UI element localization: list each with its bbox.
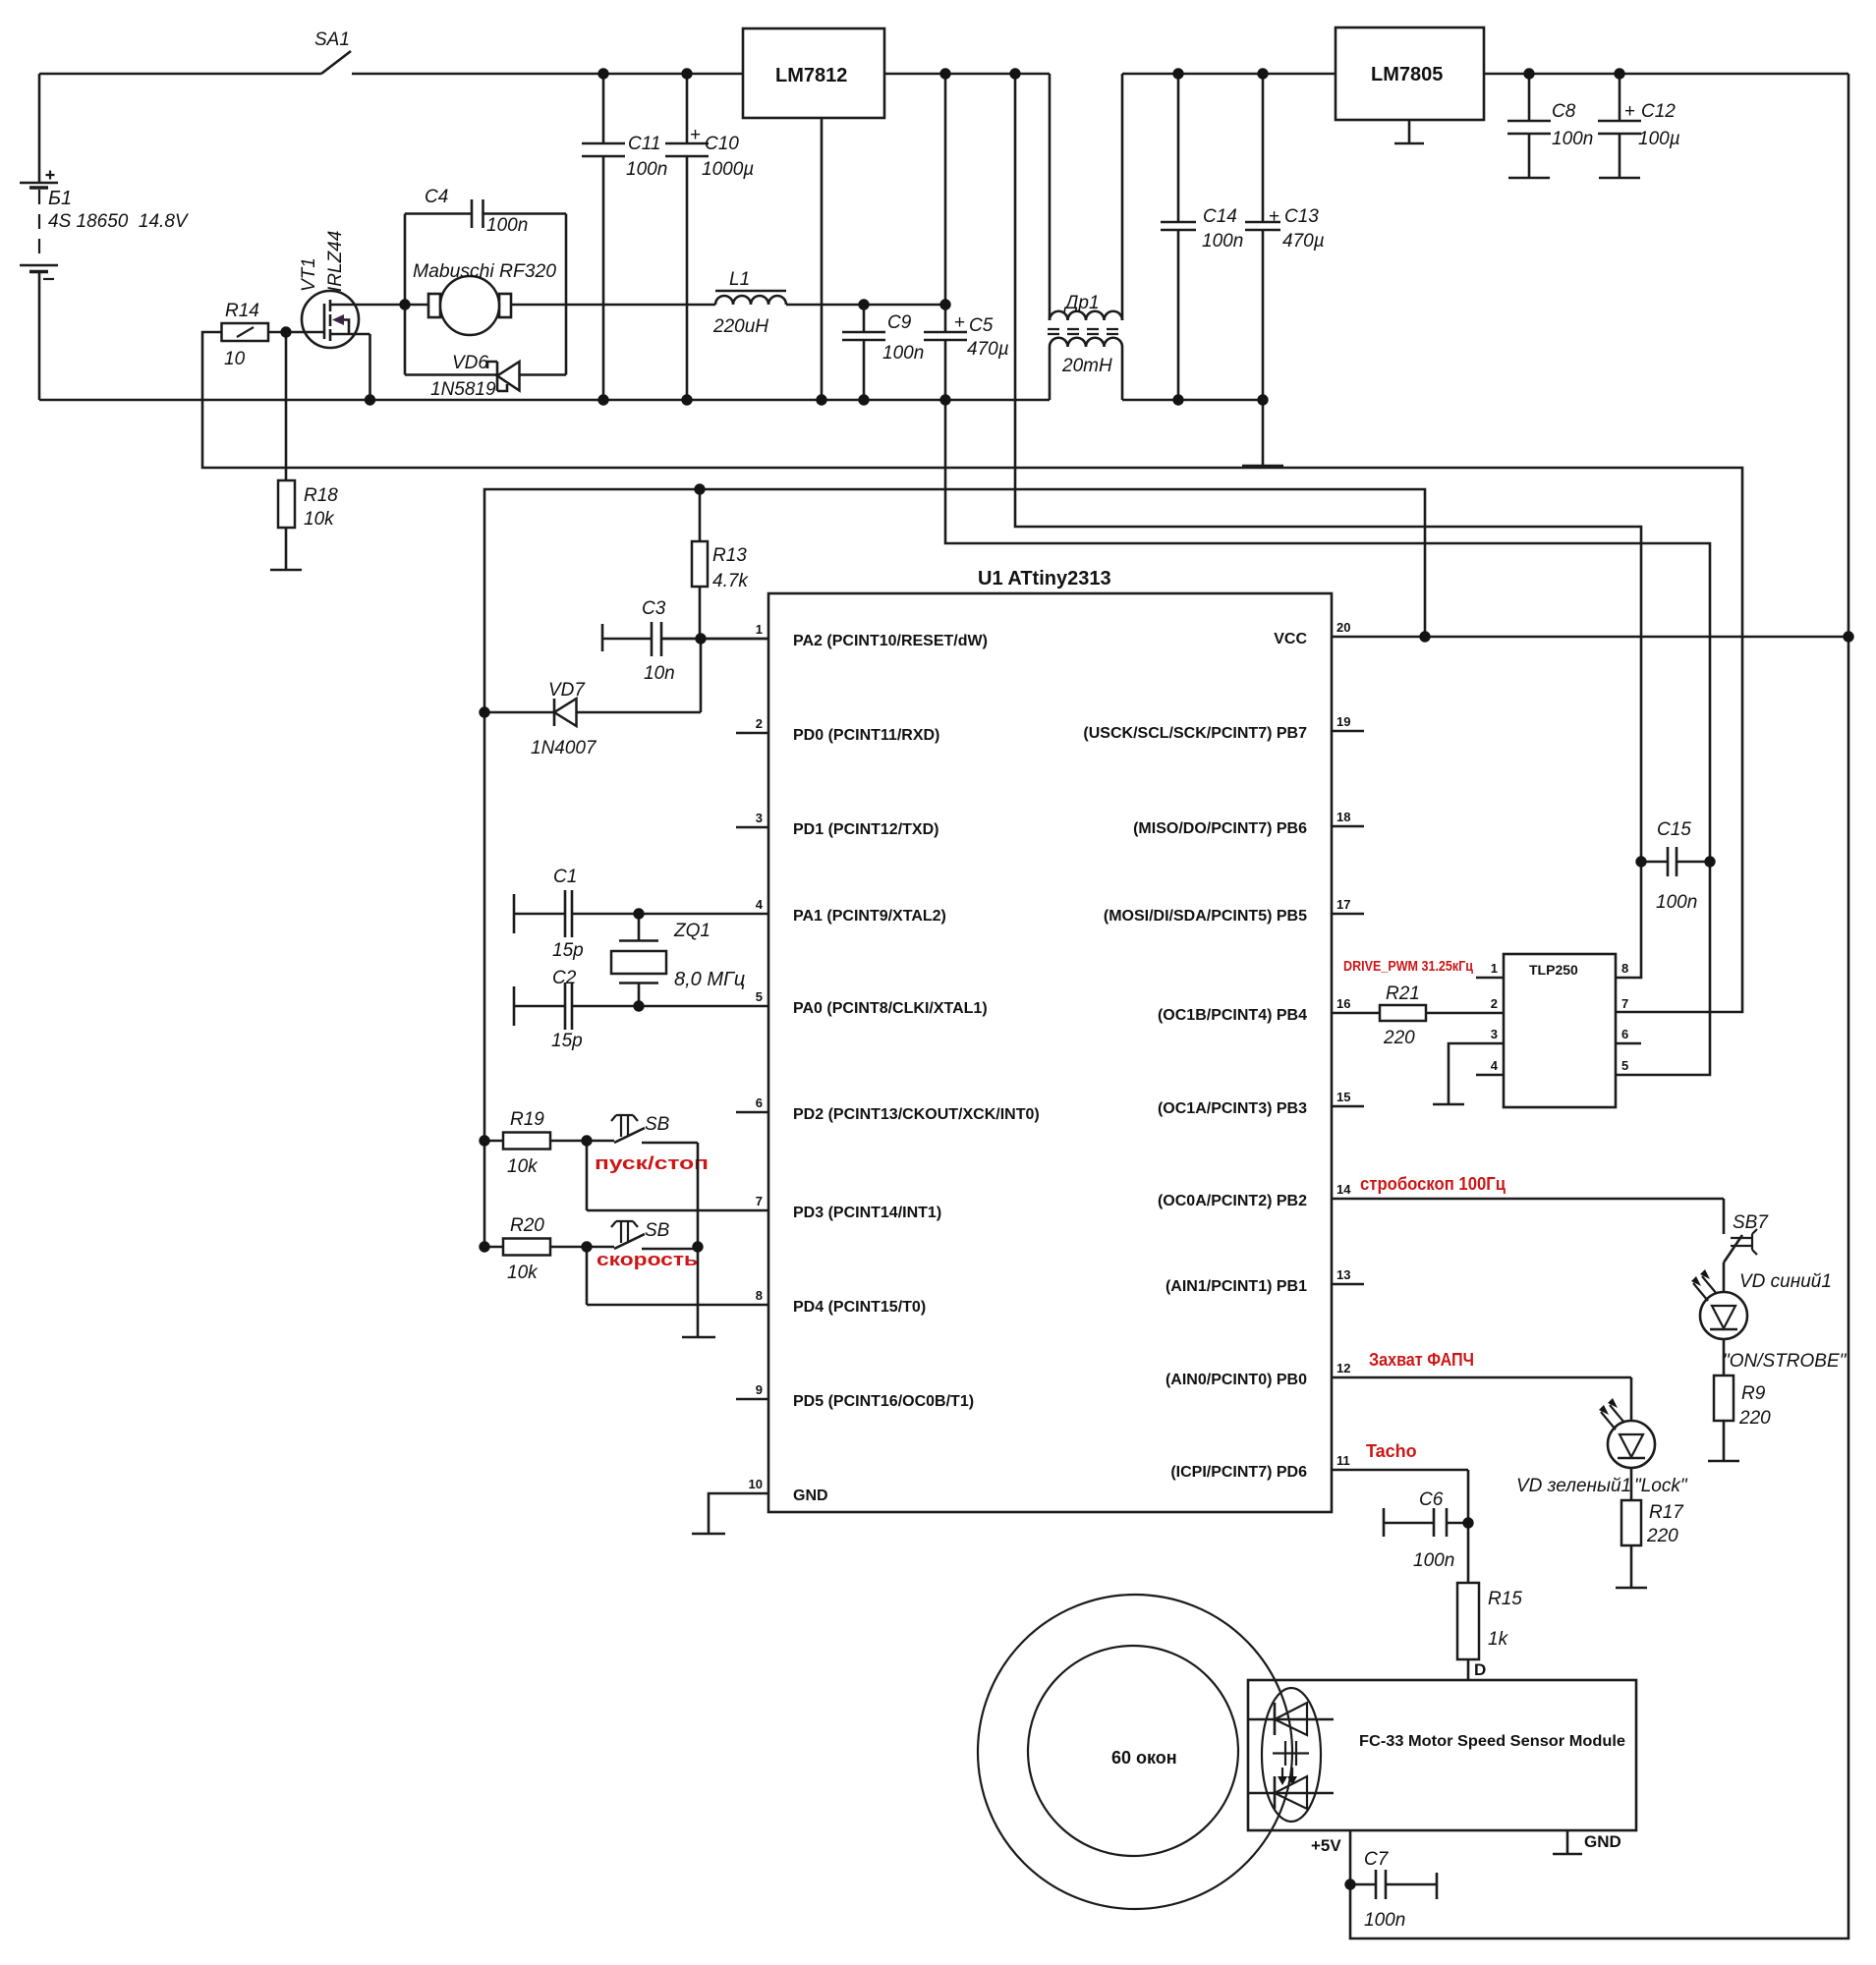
svg-text:220: 220 [1383,1028,1415,1048]
svg-text:14: 14 [1336,1182,1351,1197]
svg-text:VD синий1: VD синий1 [1739,1271,1832,1292]
svg-text:100n: 100n [626,159,667,180]
svg-text:100n: 100n [1552,129,1593,149]
svg-text:100n: 100n [882,343,924,364]
svg-text:470µ: 470µ [1282,231,1325,252]
svg-text:10k: 10k [304,509,335,530]
svg-text:+5V: +5V [1311,1836,1341,1855]
svg-text:LM7812: LM7812 [775,65,847,86]
svg-text:SA1: SA1 [314,29,350,50]
svg-text:U1 ATtiny2313: U1 ATtiny2313 [978,568,1111,589]
svg-text:LM7805: LM7805 [1371,64,1443,85]
svg-text:Б1: Б1 [48,188,72,209]
svg-text:+: + [1624,101,1635,122]
svg-text:470µ: 470µ [967,339,1009,360]
svg-text:8,0 МГц: 8,0 МГц [674,969,745,990]
svg-text:Mabuschi RF320: Mabuschi RF320 [413,261,556,282]
svg-text:VD зеленый1: VD зеленый1 [1516,1476,1631,1496]
svg-text:100n: 100n [1413,1550,1454,1571]
svg-text:100n: 100n [1656,892,1697,913]
svg-text:PA1 (PCINT9/XTAL2): PA1 (PCINT9/XTAL2) [793,908,946,925]
svg-text:11: 11 [1336,1453,1350,1468]
svg-text:220uH: 220uH [712,316,768,337]
svg-text:6: 6 [1621,1027,1628,1041]
svg-text:+: + [1269,206,1279,227]
svg-text:1: 1 [756,622,763,637]
svg-text:"ON/STROBE": "ON/STROBE" [1723,1351,1848,1372]
svg-text:60 окон: 60 окон [1111,1748,1177,1768]
svg-text:18: 18 [1336,810,1350,824]
svg-text:Захват ФАПЧ: Захват ФАПЧ [1369,1350,1474,1370]
svg-text:VD7: VD7 [548,680,586,701]
svg-text:VT1: VT1 [299,257,319,292]
svg-text:2: 2 [1491,996,1498,1011]
svg-text:8: 8 [756,1288,763,1303]
svg-text:+: + [690,125,701,145]
svg-text:стробоскоп 100Гц: стробоскоп 100Гц [1360,1174,1506,1194]
svg-text:4: 4 [1491,1058,1499,1073]
svg-text:Др1: Др1 [1063,293,1100,313]
svg-text:(AIN0/PCINT0) PB0: (AIN0/PCINT0) PB0 [1165,1372,1307,1388]
svg-text:IRLZ44: IRLZ44 [325,231,346,292]
svg-text:R9: R9 [1741,1383,1766,1404]
svg-text:Tacho: Tacho [1366,1441,1417,1461]
svg-text:PD5 (PCINT16/OC0B/T1): PD5 (PCINT16/OC0B/T1) [793,1393,974,1410]
svg-text:VD6: VD6 [452,353,488,373]
svg-text:(OC0A/PCINT2) PB2: (OC0A/PCINT2) PB2 [1158,1193,1307,1209]
svg-text:15: 15 [1336,1090,1350,1104]
svg-text:20: 20 [1336,620,1350,635]
svg-text:12: 12 [1336,1361,1350,1375]
svg-text:3: 3 [756,811,763,825]
svg-text:R18: R18 [304,485,338,506]
svg-text:R13: R13 [712,545,747,566]
svg-text:PD0 (PCINT11/RXD): PD0 (PCINT11/RXD) [793,727,939,744]
svg-text:C11: C11 [628,134,660,154]
svg-text:7: 7 [756,1194,763,1208]
svg-text:C3: C3 [642,598,666,619]
svg-text:C6: C6 [1419,1489,1444,1510]
svg-text:пуск/стоп: пуск/стоп [595,1153,709,1173]
svg-text:L1: L1 [729,269,750,290]
svg-text:(OC1B/PCINT4) PB4: (OC1B/PCINT4) PB4 [1158,1007,1307,1024]
svg-text:SB7: SB7 [1733,1212,1769,1233]
svg-text:1k: 1k [1488,1629,1509,1650]
svg-text:10n: 10n [644,663,675,684]
svg-text:10: 10 [749,1477,763,1491]
svg-text:C5: C5 [969,315,994,336]
svg-text:6: 6 [756,1095,763,1110]
svg-text:C7: C7 [1364,1849,1390,1870]
svg-text:скорость: скорость [597,1250,698,1269]
svg-text:ZQ1: ZQ1 [673,921,711,941]
svg-text:C2: C2 [552,968,577,988]
svg-text:PD3 (PCINT14/INT1): PD3 (PCINT14/INT1) [793,1205,941,1221]
svg-text:15p: 15p [552,940,584,961]
svg-text:17: 17 [1336,897,1350,912]
svg-text:(AIN1/PCINT1) PB1: (AIN1/PCINT1) PB1 [1165,1278,1307,1295]
svg-text:19: 19 [1336,714,1350,729]
svg-text:FC-33 Motor Speed Sensor Modul: FC-33 Motor Speed Sensor Module [1359,1733,1625,1750]
svg-text:C15: C15 [1657,819,1691,840]
svg-text:PD4 (PCINT15/T0): PD4 (PCINT15/T0) [793,1299,926,1316]
svg-text:16: 16 [1336,996,1350,1011]
svg-text:+: + [954,312,965,333]
svg-text:C12: C12 [1641,101,1676,122]
svg-text:(ICPI/PCINT7) PD6: (ICPI/PCINT7) PD6 [1170,1464,1307,1481]
svg-text:1N4007: 1N4007 [531,738,597,758]
svg-text:10k: 10k [507,1263,539,1283]
svg-text:5: 5 [1621,1058,1628,1073]
svg-text:13: 13 [1336,1267,1350,1282]
svg-text:4: 4 [756,897,764,912]
svg-text:C4: C4 [425,187,448,207]
svg-text:5: 5 [756,989,763,1004]
svg-text:GND: GND [793,1488,828,1504]
svg-text:220: 220 [1738,1408,1771,1429]
svg-text:8: 8 [1621,961,1628,976]
svg-text:R14: R14 [225,301,259,321]
svg-text:C14: C14 [1203,206,1237,227]
svg-text:C13: C13 [1284,206,1319,227]
svg-text:PD1 (PCINT12/TXD): PD1 (PCINT12/TXD) [793,821,938,838]
svg-text:C9: C9 [887,312,912,333]
svg-text:TLP250: TLP250 [1529,962,1578,978]
svg-text:D: D [1474,1660,1486,1679]
svg-text:100n: 100n [1364,1910,1405,1931]
svg-text:20mH: 20mH [1061,356,1112,376]
svg-text:PA2 (PCINT10/RESET/dW): PA2 (PCINT10/RESET/dW) [793,633,988,649]
svg-text:(OC1A/PCINT3) PB3: (OC1A/PCINT3) PB3 [1158,1100,1307,1117]
svg-text:R21: R21 [1386,983,1420,1004]
svg-text:R17: R17 [1649,1502,1684,1523]
svg-text:(MOSI/DI/SDA/PCINT5) PB5: (MOSI/DI/SDA/PCINT5) PB5 [1104,908,1307,925]
svg-text:1: 1 [1491,961,1498,976]
svg-text:100n: 100n [486,215,528,236]
svg-text:"Lock": "Lock" [1634,1476,1688,1496]
svg-text:220: 220 [1646,1526,1678,1546]
svg-text:R20: R20 [510,1215,544,1236]
svg-text:R19: R19 [510,1109,544,1130]
svg-text:4.7k: 4.7k [712,571,749,591]
svg-text:2: 2 [756,716,763,731]
svg-text:1000µ: 1000µ [702,159,754,180]
svg-text:15p: 15p [551,1031,583,1051]
svg-text:C1: C1 [553,867,577,887]
svg-text:100n: 100n [1202,231,1243,252]
svg-text:(USCK/SCL/SCK/PCINT7) PB7: (USCK/SCL/SCK/PCINT7) PB7 [1083,725,1307,742]
svg-text:10: 10 [224,349,246,369]
svg-text:SB: SB [645,1220,670,1241]
svg-text:R15: R15 [1488,1589,1522,1609]
svg-text:(MISO/DO/PCINT7) PB6: (MISO/DO/PCINT7) PB6 [1133,820,1307,837]
svg-text:PA0 (PCINT8/CLKI/XTAL1): PA0 (PCINT8/CLKI/XTAL1) [793,1000,988,1017]
svg-text:VCC: VCC [1274,631,1307,647]
svg-text:C10: C10 [705,134,739,154]
svg-text:GND: GND [1584,1832,1621,1851]
svg-text:10k: 10k [507,1156,539,1177]
svg-text:PD2 (PCINT13/CKOUT/XCK/INT0): PD2 (PCINT13/CKOUT/XCK/INT0) [793,1106,1040,1123]
svg-text:4S 18650 14.8V: 4S 18650 14.8V [48,211,190,232]
svg-text:SB: SB [645,1114,670,1135]
svg-text:100µ: 100µ [1638,129,1680,149]
svg-text:9: 9 [756,1382,763,1397]
svg-text:1N5819: 1N5819 [430,379,496,400]
svg-text:DRIVE_PWM 31.25кГц: DRIVE_PWM 31.25кГц [1343,958,1474,975]
svg-text:3: 3 [1491,1027,1498,1041]
svg-text:7: 7 [1621,996,1628,1011]
svg-text:C8: C8 [1552,101,1576,122]
